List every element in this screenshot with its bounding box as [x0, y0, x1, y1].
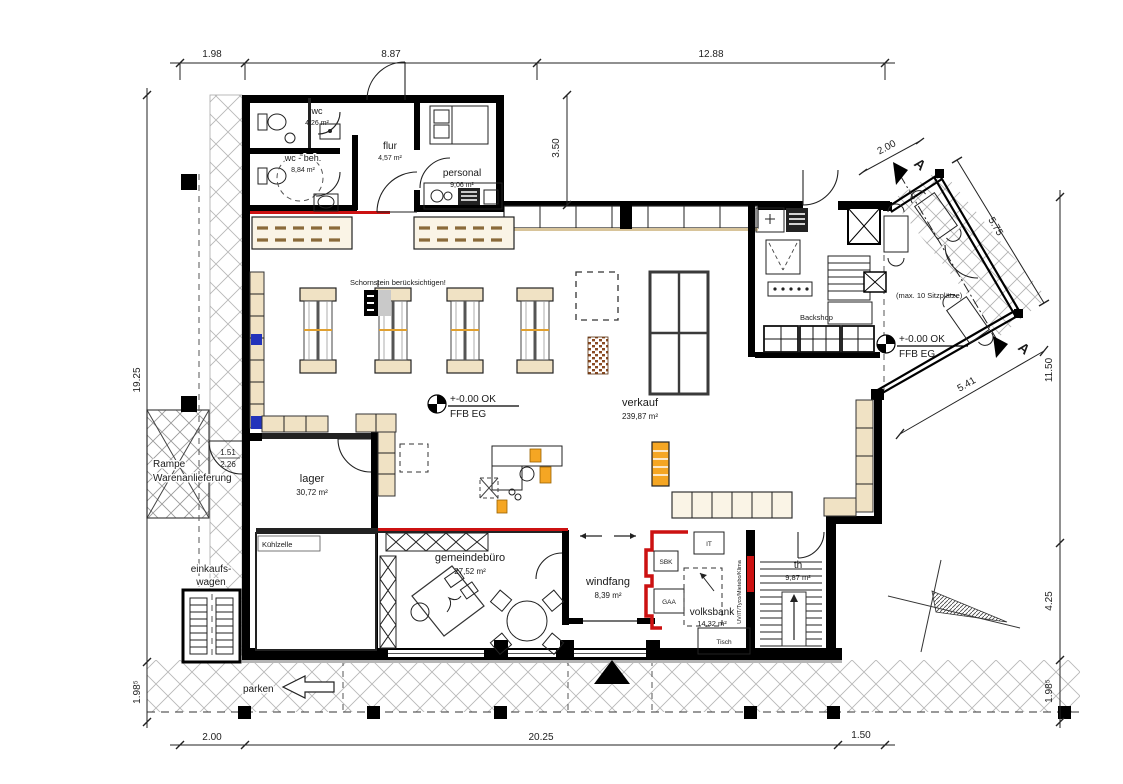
level-ref: FFB EG: [899, 349, 935, 360]
display-window-unit: [650, 272, 708, 394]
dim-right-upper: 11.50: [1044, 357, 1055, 382]
personal-furniture: [424, 106, 502, 209]
dim-left-main: 19.25: [132, 367, 143, 392]
dim-right-mid: 4.25: [1044, 591, 1055, 611]
room-area-th: 9,87 m²: [785, 573, 811, 582]
gondola-shelves: [300, 288, 553, 373]
dim-personal-depth: 3.50: [551, 138, 562, 158]
chimney-note: Schornstein berücksichtigen!: [350, 278, 446, 287]
basket-stack: [652, 442, 669, 486]
room-label-gemeindebuero: gemeindebüro: [435, 552, 505, 564]
room-label-backshop: Backshop: [800, 313, 833, 322]
gaa-label: GAA: [662, 599, 676, 606]
room-area-lager: 30,72 m²: [296, 488, 328, 497]
dim-top-left: 1.98: [202, 49, 222, 60]
room-label-volksbank: volksbank: [690, 607, 735, 618]
room-label-lager: lager: [300, 473, 325, 485]
room-area-windfang: 8,39 m²: [594, 591, 621, 600]
room-label-wc: wc: [311, 106, 323, 116]
dim-right-lower: 1.98⁵: [1044, 679, 1055, 703]
room-area-flur: 4,57 m²: [378, 155, 402, 162]
room-area-wc: 4,26 m²: [305, 120, 329, 127]
technik-label: UV/IT/Tyco/Mietebo/Klima: [737, 559, 743, 624]
cart-shelter: [183, 590, 240, 662]
kuehlzelle-room: [256, 533, 376, 650]
backshop-counter: [764, 326, 874, 352]
door-dim-width: 1.51: [220, 448, 236, 457]
terrace-hatch: [892, 169, 1047, 336]
dim-bottom-left: 2.00: [202, 732, 222, 743]
masonry-pillar: [588, 337, 608, 374]
walkway-post: [181, 174, 197, 190]
room-area-volksbank: 14,32 m²: [697, 619, 727, 628]
ramp-label-1: Rampe: [153, 459, 186, 470]
room-area-verkauf: 239,87 m²: [622, 412, 658, 421]
dim-bottom-right: 1.50: [851, 730, 871, 741]
room-label-windfang: windfang: [585, 576, 630, 588]
ramp-label-2: Warenanlieferung: [153, 473, 232, 484]
level-ref: FFB EG: [450, 409, 486, 420]
room-area-personal: 9,06 m²: [450, 182, 474, 189]
cart-label-2: wagen: [195, 577, 225, 588]
room-label-verkauf: verkauf: [622, 397, 659, 409]
level-value: +-0.00 OK: [450, 394, 496, 405]
wall-shelf-band: [414, 217, 514, 249]
dim-top-mid: 8.87: [381, 49, 401, 60]
low-shelf-row: [672, 492, 792, 518]
dim-left-lower: 1.98⁵: [132, 680, 143, 704]
section-arrow: [993, 336, 1008, 358]
section-arrow: [893, 162, 908, 185]
room-label-wc-beh: wc - beh.: [284, 153, 322, 163]
room-label-th: th: [794, 560, 802, 571]
left-wall-shelves: [250, 272, 264, 429]
floor-plan-canvas: A A +-0.00 OK FFB EG +-0.00 OK FFB EG wc…: [0, 0, 1123, 784]
shaft: [848, 208, 886, 292]
room-label-kuehlzelle: Kühlzelle: [262, 540, 292, 549]
north-arrow: [888, 560, 1020, 652]
floor-plan-page: A A +-0.00 OK FFB EG +-0.00 OK FFB EG wc…: [0, 0, 1123, 784]
lager-shelves: [262, 414, 428, 496]
room-label-personal: personal: [443, 168, 481, 179]
dim-wing-lower: 5.41: [956, 375, 979, 394]
cart-label-1: einkaufs-: [191, 564, 232, 575]
room-area-wc-beh: 8,84 m²: [291, 167, 315, 174]
checkout-counter: [480, 446, 562, 513]
wall-shelf-band: [252, 217, 352, 249]
room-area-gemeindebuero: 27,52 m²: [454, 567, 486, 576]
level-marker-center: +-0.00 OK FFB EG: [428, 394, 519, 420]
right-wall-shelves: [824, 400, 873, 516]
sbk-label: SBK: [659, 559, 673, 566]
seats-note: (max. 10 Sitzplätze): [896, 291, 963, 300]
section-label-a: A: [911, 155, 929, 174]
section-label-a: A: [1015, 339, 1033, 358]
dim-bottom-mid: 20.25: [528, 732, 553, 743]
room-label-flur: flur: [383, 141, 398, 152]
level-value: +-0.00 OK: [899, 334, 945, 345]
volksbank-fixtures: [654, 532, 750, 654]
kitchen-fixtures: [756, 208, 812, 296]
door-dim-height: 2.26: [220, 460, 236, 469]
dim-top-right: 12.88: [698, 49, 723, 60]
tisch-label: Tisch: [716, 639, 732, 646]
parking-label: parken: [243, 684, 274, 695]
meeting-table: [507, 601, 547, 641]
volksbank-niche-wall: [646, 532, 688, 628]
walkway-post: [181, 396, 197, 412]
reserved-area-dashed: [576, 272, 618, 320]
it-label: IT: [706, 541, 712, 548]
